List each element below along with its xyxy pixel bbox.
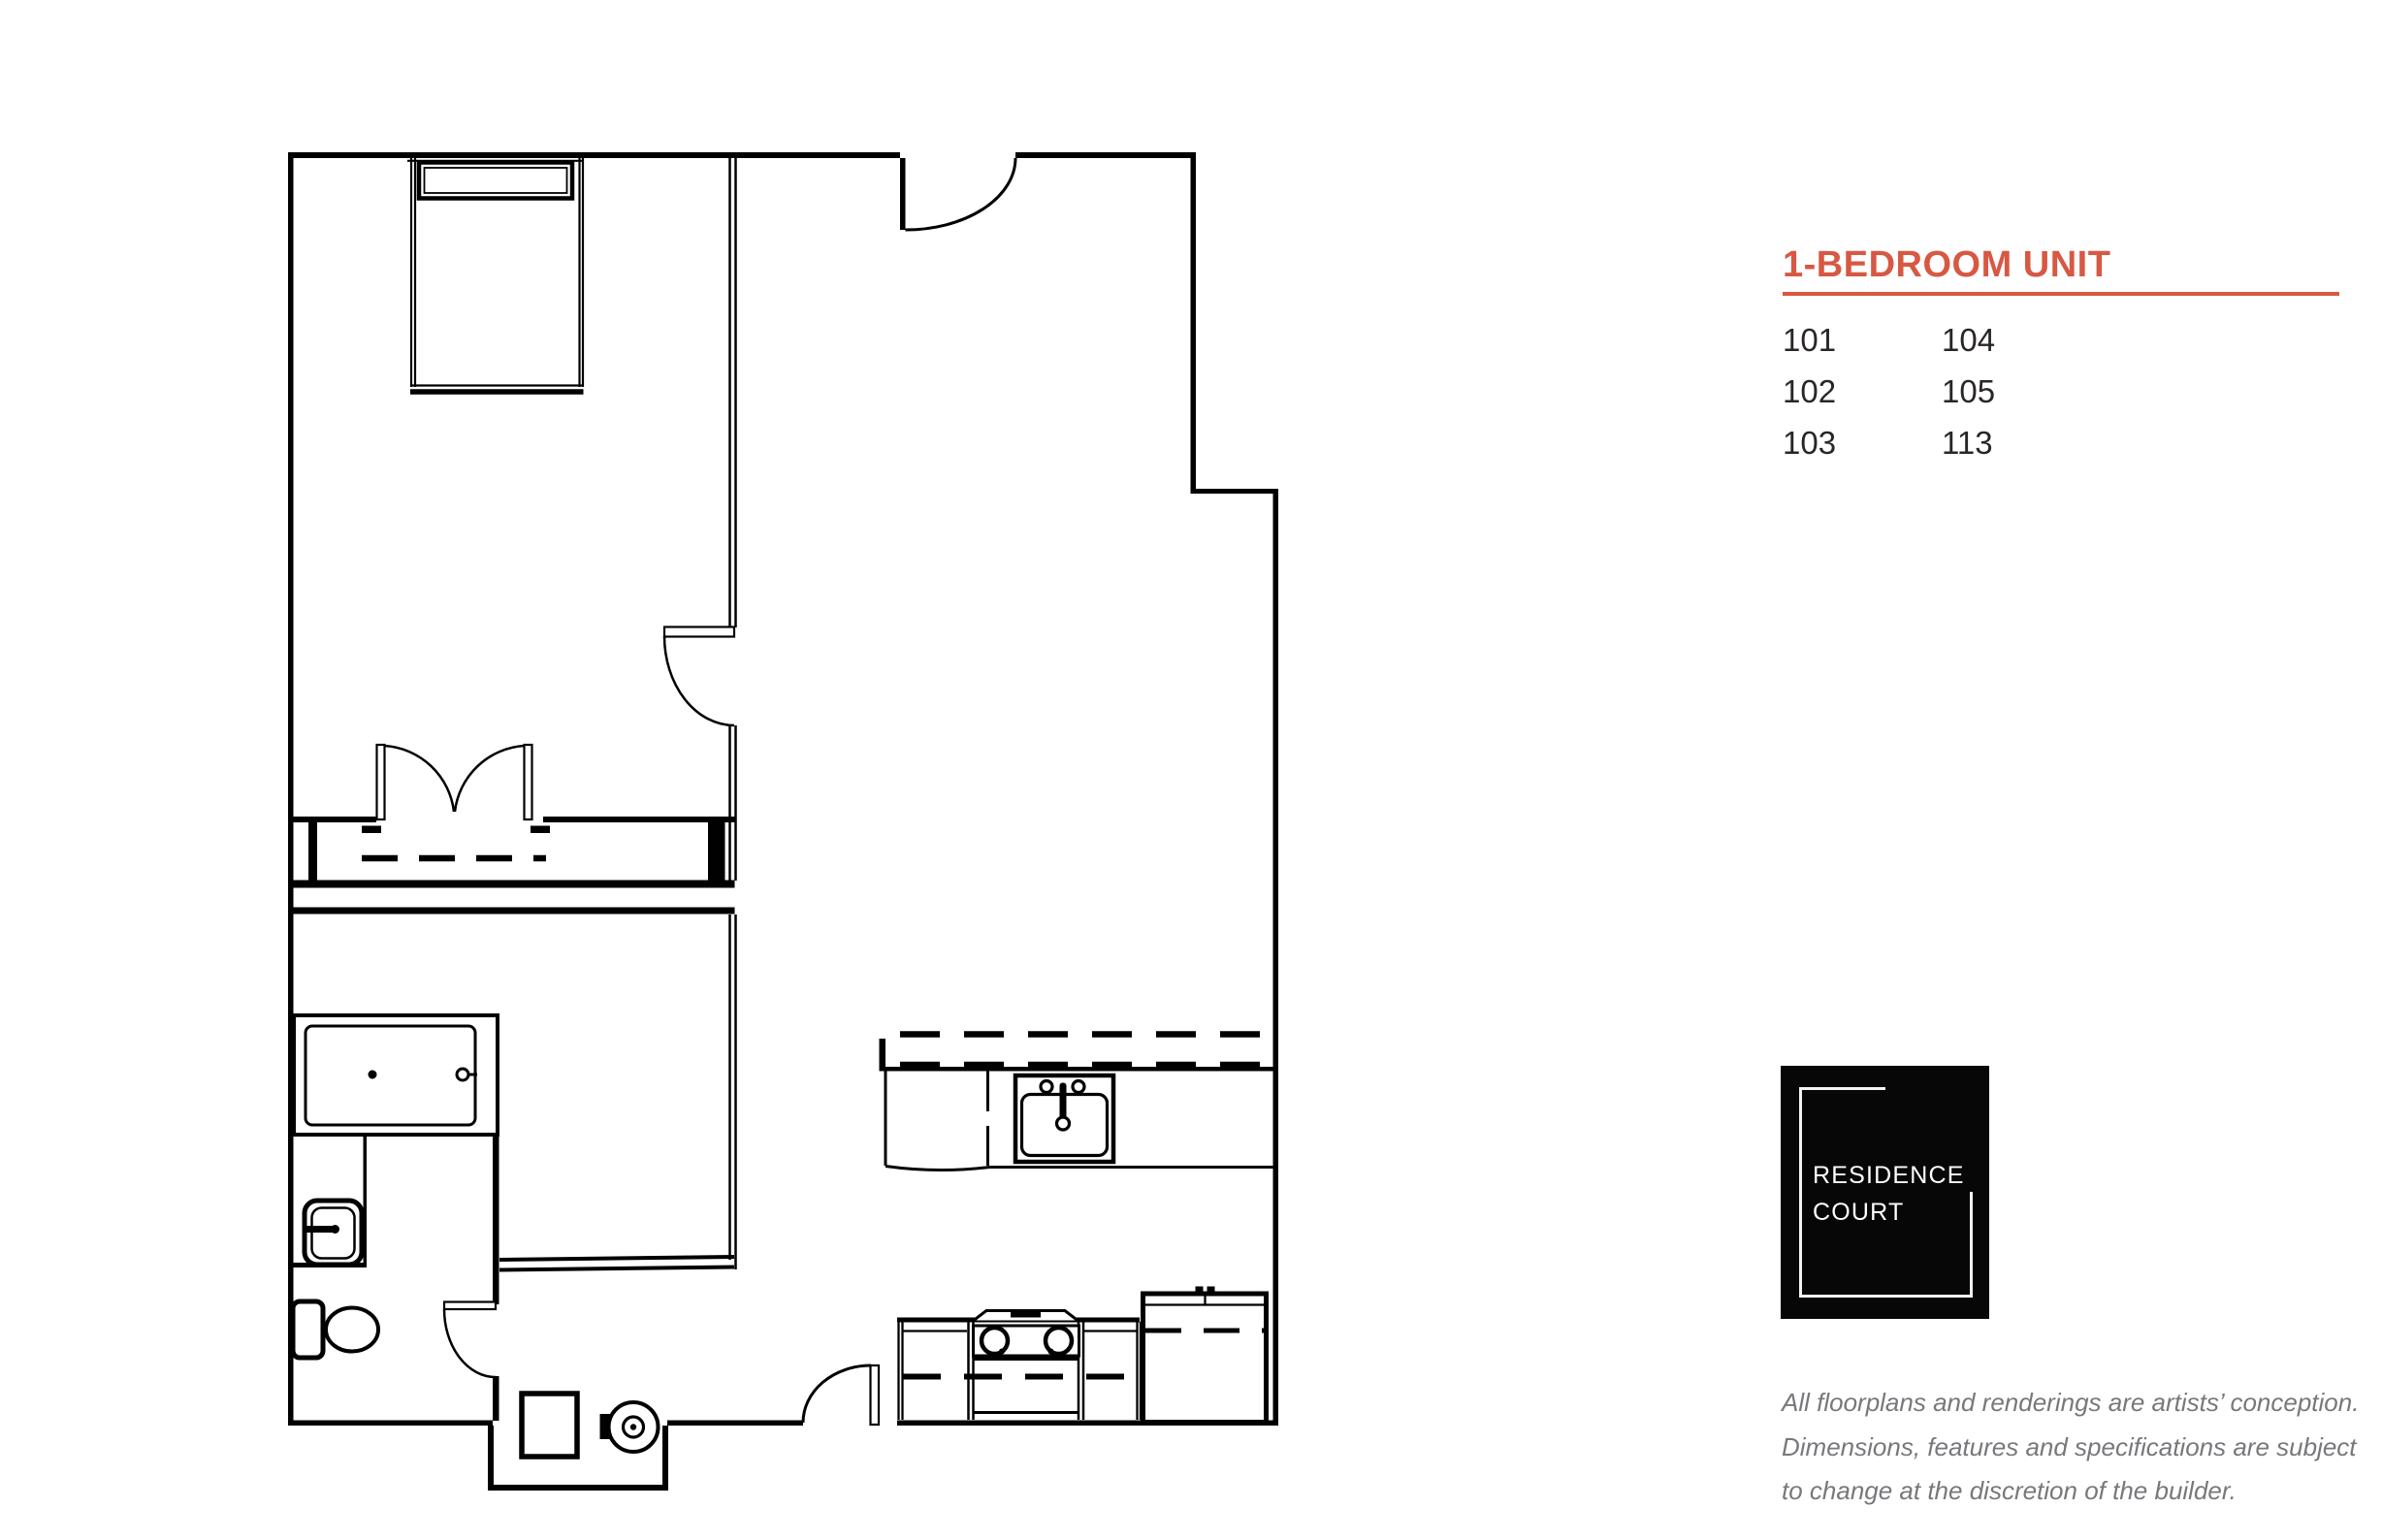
flyer-page: 1-BEDROOM UNIT 101 102 103 104 105 113 R… [0, 0, 2382, 1540]
logo-line-2: COURT [1813, 1194, 1965, 1231]
title-underline [1783, 292, 2339, 296]
unit-number: 101 [1783, 314, 1836, 366]
refrigerator [1143, 1287, 1267, 1423]
unit-number: 105 [1942, 366, 1995, 417]
toilet [293, 1301, 378, 1358]
tub-faucet [457, 1069, 468, 1080]
kitchen-counter [880, 1035, 1279, 1171]
bathroom-door [444, 1302, 496, 1378]
bathtub [294, 1015, 498, 1135]
washer [522, 1394, 577, 1457]
disclaimer-line-3: to change at the discretion of the build… [1782, 1469, 2359, 1514]
logo-frame-top [1799, 1087, 1885, 1090]
unit-number-column-2: 104 105 113 [1942, 314, 1995, 468]
unit-number: 104 [1942, 314, 1995, 366]
tub-drain [369, 1071, 377, 1079]
entry-door [803, 1365, 879, 1425]
residence-court-logo: RESIDENCE COURT [1781, 1066, 1989, 1319]
interior-wall [730, 158, 736, 1269]
unit-number: 103 [1783, 417, 1836, 468]
vanity-sink [305, 1201, 362, 1265]
logo-frame-left [1799, 1087, 1802, 1298]
water-heater [600, 1402, 659, 1452]
half-wall [499, 1257, 734, 1270]
disclaimer-line-1: All floorplans and renderings are artist… [1782, 1381, 2359, 1426]
disclaimer-line-2: Dimensions, features and specifications … [1782, 1426, 2359, 1470]
logo-frame-right [1970, 1192, 1973, 1298]
bathroom-walls [291, 1135, 499, 1421]
logo-line-1: RESIDENCE [1813, 1157, 1965, 1194]
bed [407, 158, 584, 392]
range [969, 1311, 1084, 1421]
living-room-door [900, 158, 1015, 230]
closet [288, 745, 735, 914]
floorplan-drawing [0, 0, 1377, 1540]
unit-number-column-1: 101 102 103 [1783, 314, 1836, 468]
kitchen-sink [1015, 1075, 1113, 1162]
bedroom-door [664, 627, 734, 726]
disclaimer-text: All floorplans and renderings are artist… [1782, 1381, 2359, 1514]
logo-frame-bottom [1799, 1295, 1973, 1298]
logo-text: RESIDENCE COURT [1813, 1157, 1965, 1231]
exterior-walls [288, 152, 1278, 1491]
unit-number: 102 [1783, 366, 1836, 417]
page-title: 1-BEDROOM UNIT [1783, 244, 2110, 286]
unit-number: 113 [1942, 417, 1995, 468]
closet-double-doors [377, 745, 532, 819]
